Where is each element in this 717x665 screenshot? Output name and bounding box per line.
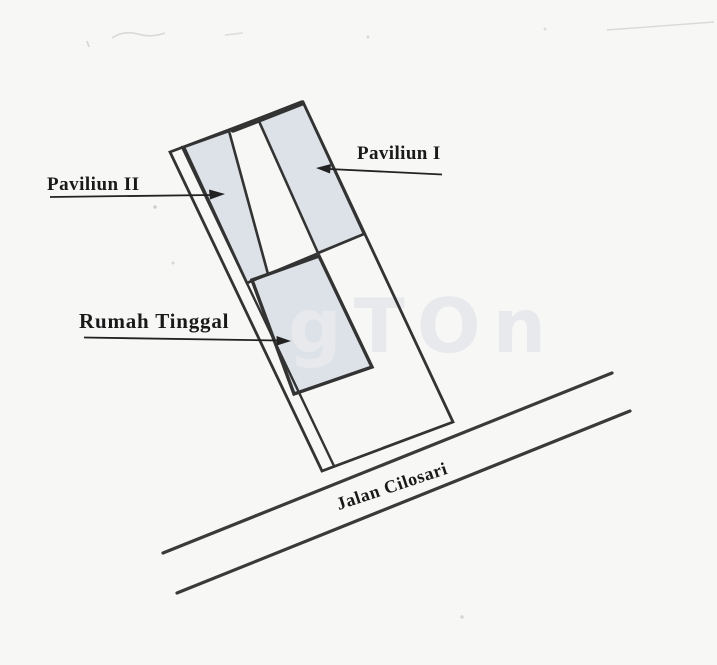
scan-artifact	[112, 33, 165, 38]
label-rumah-tinggal: Rumah Tinggal	[79, 309, 229, 334]
scan-artifact	[87, 41, 89, 47]
scan-artifact	[153, 205, 157, 209]
scan-artifact	[225, 33, 243, 35]
label-paviliun-2: Paviliun II	[47, 174, 140, 196]
scan-artifact	[367, 36, 370, 39]
paviliun-1-arrow-line	[329, 169, 442, 175]
scan-artifact	[607, 22, 714, 30]
road-edge-line-far	[177, 411, 630, 593]
scan-artifact	[172, 262, 175, 265]
scan-artifact	[460, 615, 463, 618]
paviliun-1-fill	[258, 102, 364, 253]
scan-artifact	[544, 28, 547, 31]
label-paviliun-1: Paviliun I	[357, 143, 441, 165]
site-plan-canvas: gTOn	[0, 0, 717, 665]
rumah-tinggal-arrow-line	[84, 338, 278, 341]
road-edge-line-near	[163, 373, 612, 553]
